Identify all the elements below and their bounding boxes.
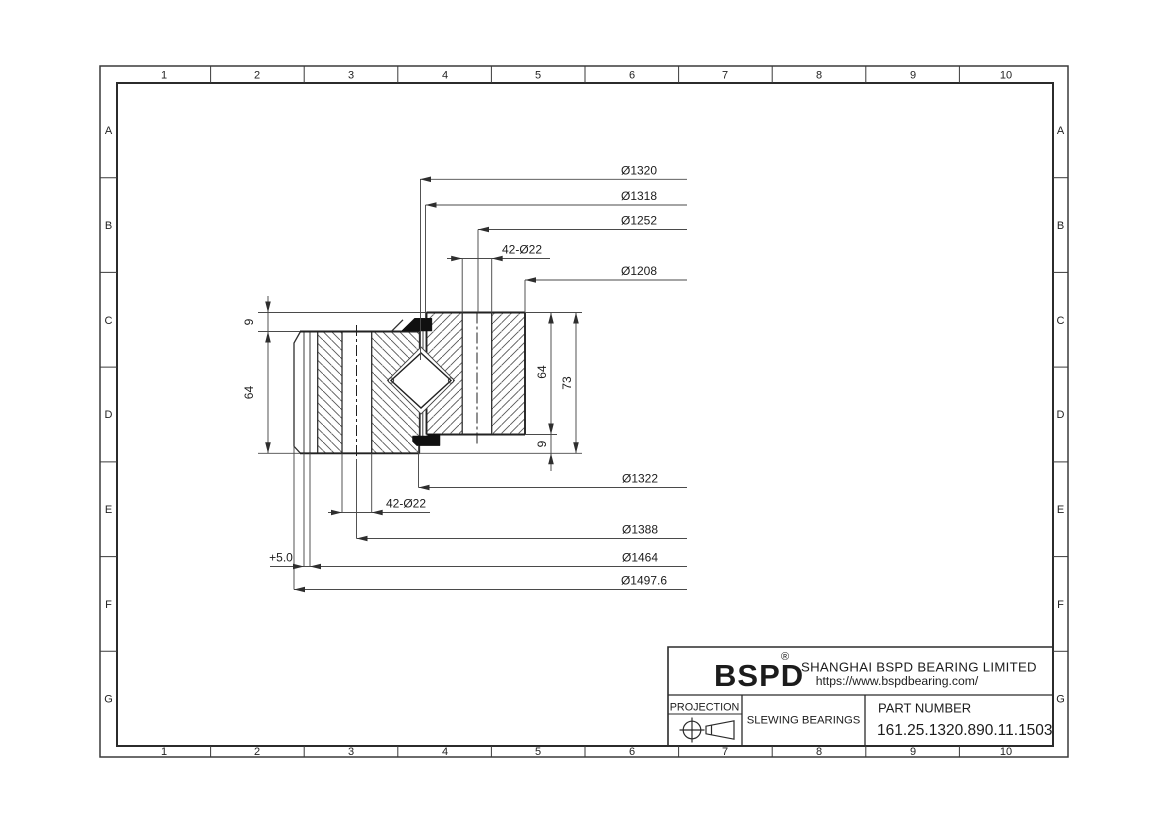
- engineering-drawing: 1 2 3 4 5 6 7 8 9 10 1 2 3 4 5 6 7 8 9 1…: [0, 0, 1170, 827]
- projection-label: PROJECTION: [670, 702, 740, 714]
- grid-col-label: 8: [816, 70, 822, 82]
- product-type: SLEWING BEARINGS: [747, 715, 861, 727]
- dimensions-bottom: Ø1322 42-Ø22 Ø1388 Ø1464 Ø1497.6 +5.0: [269, 446, 687, 592]
- grid-col-label: 8: [816, 746, 822, 758]
- grid-labels: 1 2 3 4 5 6 7 8 9 10 1 2 3 4 5 6 7 8 9 1…: [104, 70, 1065, 759]
- grid-row-label: E: [105, 504, 112, 516]
- grid-row-label: B: [1057, 220, 1064, 232]
- grid-col-label: 6: [629, 70, 635, 82]
- top-seal: [402, 318, 432, 331]
- grid-row-label: C: [105, 315, 113, 327]
- grid-col-label: 7: [722, 70, 728, 82]
- dim-label: Ø1464: [622, 551, 658, 565]
- grid-col-label: 5: [535, 70, 541, 82]
- dim-label: Ø1320: [621, 164, 657, 178]
- grid-col-label: 3: [348, 70, 354, 82]
- dim-label: 42-Ø22: [502, 243, 542, 257]
- grid-col-label: 5: [535, 746, 541, 758]
- grid-col-label: 10: [1000, 70, 1012, 82]
- grid-col-label: 4: [442, 70, 448, 82]
- company-name: SHANGHAI BSPD BEARING LIMITED: [801, 660, 1037, 675]
- bspd-logo: BSPD: [714, 658, 804, 693]
- grid-col-label: 9: [910, 70, 916, 82]
- grid-col-label: 7: [722, 746, 728, 758]
- grid-row-label: B: [105, 220, 112, 232]
- dim-label: 9: [242, 318, 256, 325]
- part-number-label: PART NUMBER: [878, 701, 971, 716]
- dim-label: 64: [535, 365, 549, 379]
- dim-label: Ø1497.6: [621, 574, 667, 588]
- grid-row-label: F: [105, 599, 112, 611]
- dim-label: 64: [242, 386, 256, 400]
- grid-row-label: A: [1057, 125, 1065, 137]
- grid-row-label: D: [1057, 409, 1065, 421]
- grid-row-label: E: [1057, 504, 1064, 516]
- dim-label: Ø1322: [622, 472, 658, 486]
- dim-label: 73: [560, 376, 574, 390]
- grid-row-label: C: [1057, 315, 1065, 327]
- bottom-seal: [413, 434, 441, 445]
- part-number-value: 161.25.1320.890.11.1503: [877, 722, 1053, 739]
- dim-label-offset: +5.0: [269, 551, 293, 565]
- grid-col-label: 1: [161, 746, 167, 758]
- grid-col-label: 1: [161, 70, 167, 82]
- dim-label: 9: [535, 440, 549, 447]
- grid-col-label: 4: [442, 746, 448, 758]
- dim-label: Ø1252: [621, 214, 657, 228]
- dim-label: Ø1208: [621, 264, 657, 278]
- grid-row-label: G: [104, 694, 113, 706]
- grid-col-label: 2: [254, 70, 260, 82]
- drawing-sheet: 1 2 3 4 5 6 7 8 9 10 1 2 3 4 5 6 7 8 9 1…: [0, 0, 1170, 827]
- grid-col-label: 2: [254, 746, 260, 758]
- grid-row-label: A: [105, 125, 113, 137]
- grid-row-label: G: [1056, 694, 1065, 706]
- sheet-frame: 1 2 3 4 5 6 7 8 9 10 1 2 3 4 5 6 7 8 9 1…: [100, 66, 1068, 758]
- dim-label: 42-Ø22: [386, 497, 426, 511]
- dim-label: Ø1318: [621, 189, 657, 203]
- grid-row-label: D: [105, 409, 113, 421]
- grid-col-label: 6: [629, 746, 635, 758]
- dim-label: Ø1388: [622, 523, 658, 537]
- grid-col-label: 3: [348, 746, 354, 758]
- first-angle-projection-icon: [680, 718, 735, 743]
- company-website: https://www.bspdbearing.com/: [816, 674, 979, 688]
- registered-trademark-icon: ®: [781, 651, 789, 663]
- grid-ticks: [100, 66, 1068, 757]
- grid-row-label: F: [1057, 599, 1064, 611]
- grid-col-label: 10: [1000, 746, 1012, 758]
- bearing-cross-section: [294, 313, 525, 460]
- grid-col-label: 9: [910, 746, 916, 758]
- title-block: BSPD ® SHANGHAI BSPD BEARING LIMITED htt…: [668, 647, 1053, 746]
